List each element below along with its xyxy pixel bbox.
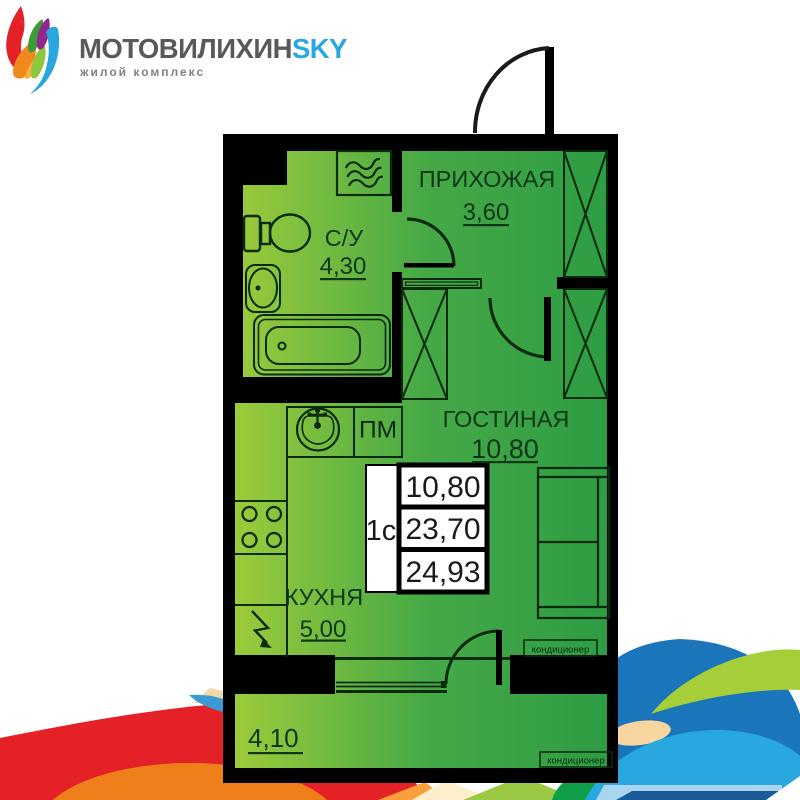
svg-text:КУХНЯ: КУХНЯ xyxy=(285,584,364,610)
svg-text:24,93: 24,93 xyxy=(405,556,480,589)
svg-text:4,30: 4,30 xyxy=(320,253,367,280)
svg-text:ПРИХОЖАЯ: ПРИХОЖАЯ xyxy=(419,166,555,192)
svg-text:10,80: 10,80 xyxy=(405,471,480,504)
svg-text:10,80: 10,80 xyxy=(471,434,539,464)
svg-text:МОТОВИЛИХИНSKY: МОТОВИЛИХИНSKY xyxy=(79,33,347,64)
svg-text:5,00: 5,00 xyxy=(300,616,347,643)
svg-text:ПМ: ПМ xyxy=(359,417,397,444)
svg-text:1с: 1с xyxy=(366,515,397,547)
svg-text:жилой комплекс: жилой комплекс xyxy=(79,65,205,79)
svg-text:С/У: С/У xyxy=(325,225,365,251)
svg-text:4,10: 4,10 xyxy=(248,723,299,753)
svg-text:кондиционер: кондиционер xyxy=(532,645,590,656)
svg-text:кондиционер: кондиционер xyxy=(547,756,605,767)
svg-text:23,70: 23,70 xyxy=(405,513,480,546)
svg-text:ГОСТИНАЯ: ГОСТИНАЯ xyxy=(443,406,570,432)
svg-text:3,60: 3,60 xyxy=(463,199,510,226)
